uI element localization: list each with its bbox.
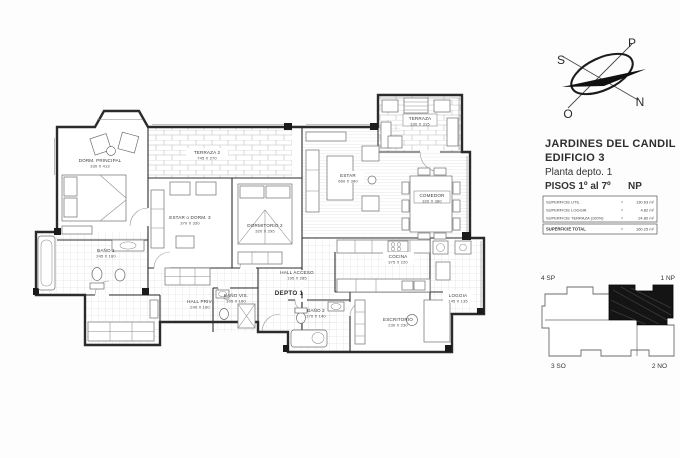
unit-number-label: DEPTO 1	[275, 290, 304, 297]
sheet-svg: DORM. PRINCIPAL330 X 413 TERRAZA 2745 X …	[0, 0, 680, 458]
project-title: JARDINES DEL CANDIL	[545, 138, 676, 150]
room-label-comedor: COMEDOR320 X 380	[419, 193, 445, 203]
room-label-cocina: COCINA375 X 220	[388, 254, 408, 264]
floors-line: PISOS 1º al 7º	[545, 181, 611, 192]
compass-letter-p: P	[628, 36, 636, 50]
room-label-estar: ESTAR660 X 380	[338, 173, 358, 183]
area-row-label: SUPERFICIE LOGGIA	[546, 208, 587, 213]
compass-letter-n: N	[636, 95, 645, 109]
keyplan-label-2no: 2 NO	[652, 363, 667, 370]
area-row-value: 24.80 m²	[638, 216, 654, 221]
floor-plan: DORM. PRINCIPAL330 X 413 TERRAZA 2745 X …	[33, 95, 484, 352]
orientation-code: NP	[628, 181, 642, 192]
area-row-value: 130.63 m²	[636, 200, 655, 205]
area-row-label: SUPERFICIE TERRAZA (100%)	[546, 216, 604, 221]
area-total-value: 160.25 m²	[636, 227, 655, 232]
room-label-terraza2: TERRAZA 2745 X 270	[194, 150, 221, 160]
key-plan: 4 SP 1 NP 3 SO 2 NO	[541, 275, 675, 370]
title-block: JARDINES DEL CANDIL EDIFICIO 3 Planta de…	[545, 138, 676, 192]
area-row-value: 4.82 m²	[640, 208, 654, 213]
area-table: SUPERFICIE UTIL = 130.63 m² SUPERFICIE L…	[543, 196, 657, 234]
keyplan-label-3so: 3 SO	[551, 363, 566, 370]
floor-unit-line: Planta depto. 1	[545, 167, 613, 178]
area-total-label: SUPERFICIE TOTAL	[546, 227, 586, 232]
keyplan-label-4sp: 4 SP	[541, 275, 555, 282]
compass-letter-o: O	[563, 107, 572, 121]
room-label-terraza: TERRAZA330 X 315	[409, 116, 432, 126]
keyplan-highlighted-unit	[609, 285, 673, 325]
furniture-comedor	[402, 168, 460, 239]
area-row-label: SUPERFICIE UTIL	[546, 200, 581, 205]
room-label-banovis: BAÑO VIS.105 X 160	[224, 292, 248, 303]
room-label-bano2: BAÑO 2170 X 140	[306, 307, 326, 318]
keyplan-label-1np: 1 NP	[661, 275, 675, 282]
room-label-hall-priv: HALL PRIV.240 X 180	[187, 299, 213, 309]
compass-rose: P S N O	[557, 36, 646, 121]
room-label-bano1: BAÑO 1245 X 160	[96, 247, 116, 258]
compass-letter-s: S	[557, 53, 565, 67]
architectural-sheet: DORM. PRINCIPAL330 X 413 TERRAZA 2745 X …	[0, 0, 680, 458]
room-label-loggia: LOGGIA145 X 135	[448, 293, 468, 303]
building-title: EDIFICIO 3	[545, 152, 605, 164]
